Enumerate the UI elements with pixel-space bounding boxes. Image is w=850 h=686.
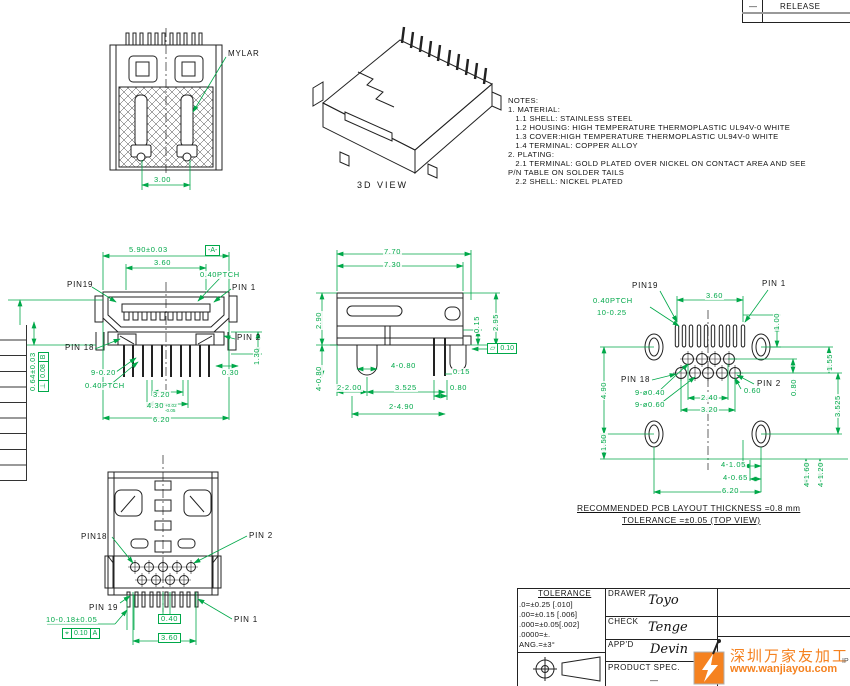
tolerance-line: .000=±0.05[.002] bbox=[519, 621, 579, 629]
release-table-line bbox=[742, 22, 850, 23]
gdt-tolerance: 0.08 bbox=[39, 361, 48, 380]
appd-name: Devin bbox=[650, 643, 688, 656]
datum-a: -A- bbox=[205, 245, 220, 256]
left-table-strip bbox=[0, 325, 27, 481]
note-line: 1.4 TERMINAL: COPPER ALLOY bbox=[508, 141, 850, 150]
view-3d-caption: 3D VIEW bbox=[357, 180, 408, 190]
check-name: Tenge bbox=[648, 621, 688, 634]
release-label: RELEASE bbox=[780, 2, 820, 11]
tolerance-title: TOLERANCE bbox=[538, 590, 591, 598]
tolerance-line: .0=±0.25 [.010] bbox=[519, 601, 573, 609]
note-line: 1.2 HOUSING: HIGH TEMPERATURE THERMOPLAS… bbox=[508, 123, 850, 132]
tolerance-line: .0000=±. bbox=[519, 631, 550, 639]
notes-block: NOTES:1. MATERIAL: 1.1 SHELL: STAINLESS … bbox=[508, 96, 850, 186]
title-block-line bbox=[605, 588, 606, 686]
position-frame: ⌖0.10A bbox=[62, 628, 100, 639]
title-block-line bbox=[717, 616, 850, 617]
note-line: 2.1 TERMINAL: GOLD PLATED OVER NICKEL ON… bbox=[508, 159, 850, 168]
title-block-line bbox=[517, 588, 518, 686]
release-rev: — bbox=[749, 2, 758, 11]
note-line: 1.3 COVER:HIGH TEMPERATURE THERMOPLASTIC… bbox=[508, 132, 850, 141]
gdt-symbol: ▱ bbox=[488, 344, 498, 353]
perpendicularity-frame: ⊥0.08B bbox=[38, 352, 49, 392]
pcb-note-line1: RECOMMENDED PCB LAYOUT THICKNESS =0.8 mm bbox=[577, 503, 800, 513]
tolerance-line: .00=±0.15 [.006] bbox=[519, 611, 577, 619]
tolerance-line: ANG.=±3° bbox=[519, 641, 555, 649]
drawing-sheet: MYLAR3.00 5.90±0.033.600.40PTCHPIN19PIN … bbox=[0, 0, 850, 686]
drawer-name: Toyo bbox=[648, 594, 679, 607]
title-block-line bbox=[517, 652, 605, 653]
edge-clipped-text: IP bbox=[842, 658, 849, 665]
check-label: CHECK bbox=[608, 618, 639, 626]
note-line: NOTES: bbox=[508, 96, 850, 105]
gdt-tolerance: 0.10 bbox=[498, 344, 516, 353]
watermark-logo bbox=[692, 638, 726, 686]
watermark-url: www.wanjiayou.com bbox=[730, 663, 837, 675]
note-line: 2. PLATING: bbox=[508, 150, 850, 159]
pcb-note-line2: TOLERANCE =±0.05 (TOP VIEW) bbox=[622, 515, 761, 525]
gdt-symbol: ⊥ bbox=[39, 380, 48, 391]
flatness-frame: ▱0.10 bbox=[487, 343, 517, 354]
drawer-label: DRAWER bbox=[608, 590, 646, 598]
note-line: 1. MATERIAL: bbox=[508, 105, 850, 114]
product-spec-label: PRODUCT SPEC. bbox=[608, 664, 680, 672]
appd-label: APP'D bbox=[608, 641, 634, 649]
title-block-line bbox=[717, 636, 850, 637]
product-spec-value: — bbox=[650, 677, 659, 685]
gdt-datum: A bbox=[91, 629, 100, 638]
release-table-divider bbox=[742, 12, 850, 14]
gdt-datum: B bbox=[39, 353, 48, 362]
note-line: P/N TABLE ON SOLDER TAILS bbox=[508, 168, 850, 177]
gdt-symbol: ⌖ bbox=[63, 629, 72, 638]
note-line: 1.1 SHELL: STAINLESS STEEL bbox=[508, 114, 850, 123]
gdt-tolerance: 0.10 bbox=[72, 629, 91, 638]
note-line: 2.2 SHELL: NICKEL PLATED bbox=[508, 177, 850, 186]
